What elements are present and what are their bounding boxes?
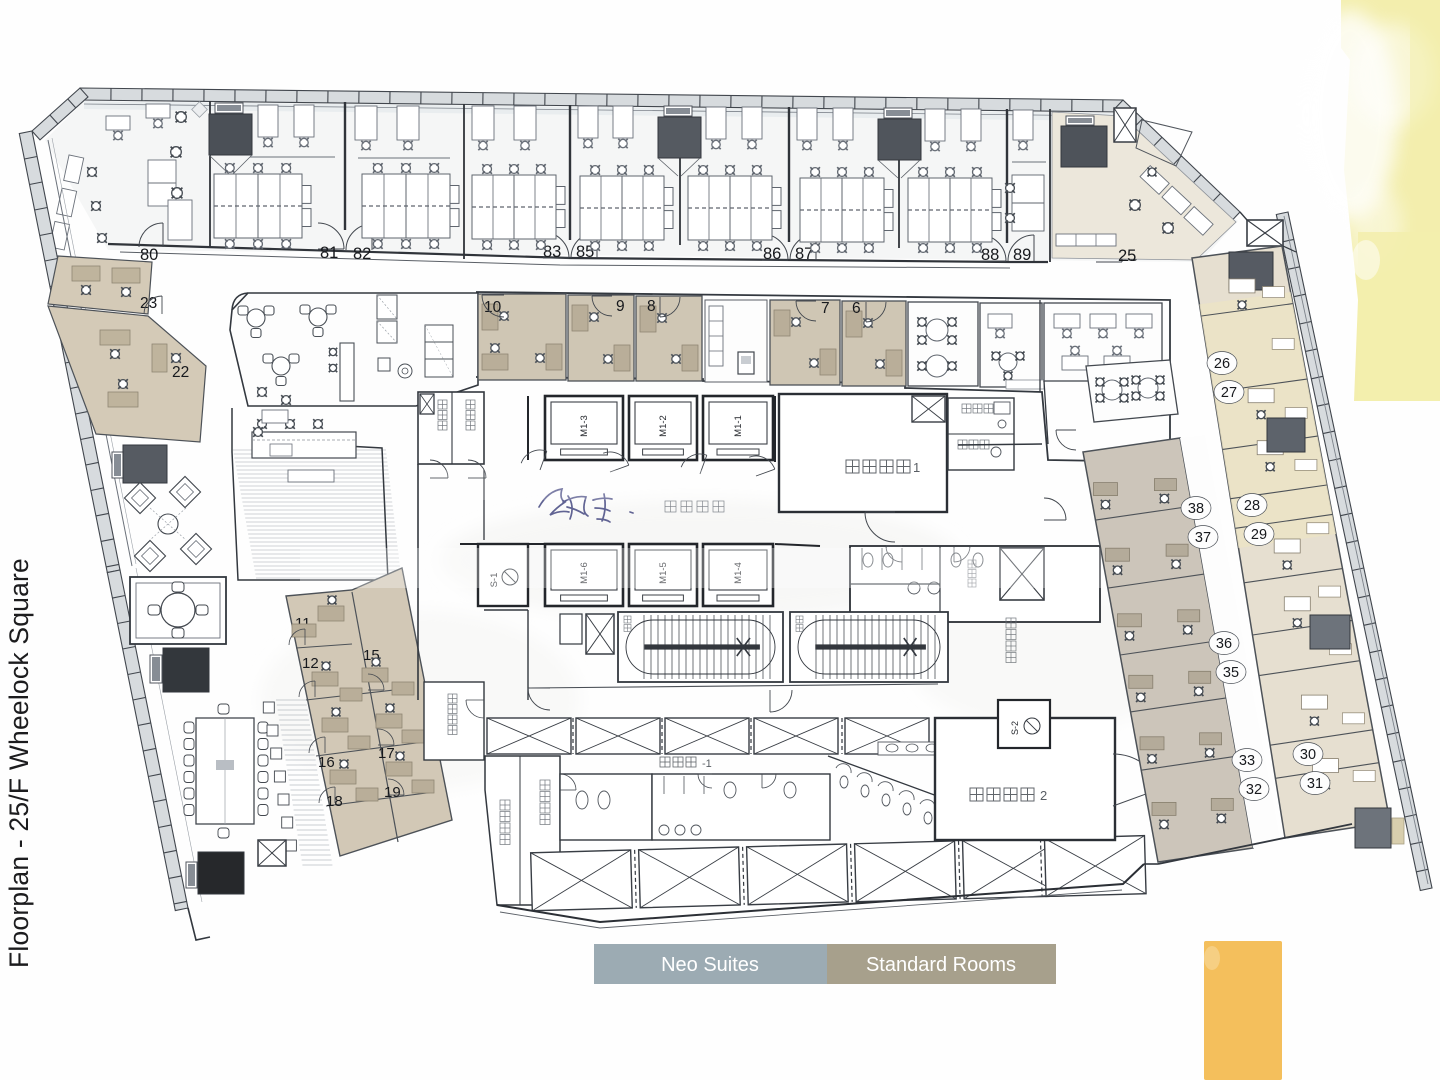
svg-text:31: 31: [1307, 776, 1323, 792]
svg-text:38: 38: [1188, 501, 1204, 517]
svg-text:19: 19: [384, 784, 401, 801]
svg-text:29: 29: [1251, 527, 1267, 543]
svg-text:10: 10: [484, 299, 502, 316]
svg-text:27: 27: [1221, 385, 1237, 401]
svg-text:Neo Suites: Neo Suites: [661, 954, 759, 976]
svg-text:M1-1: M1-1: [733, 415, 744, 437]
svg-text:18: 18: [326, 793, 343, 810]
svg-text:9: 9: [616, 298, 625, 315]
svg-text:22: 22: [172, 364, 189, 381]
svg-text:8: 8: [647, 298, 656, 315]
svg-text:33: 33: [1239, 753, 1255, 769]
svg-text:7: 7: [821, 300, 830, 317]
svg-text:17: 17: [378, 745, 395, 762]
svg-text:25: 25: [1118, 247, 1136, 265]
svg-text:32: 32: [1246, 782, 1262, 798]
svg-text:M1-3: M1-3: [579, 415, 590, 437]
svg-text:81: 81: [320, 244, 338, 262]
svg-text:35: 35: [1223, 665, 1239, 681]
svg-text:89: 89: [1013, 246, 1031, 264]
svg-text:37: 37: [1195, 530, 1211, 546]
svg-text:36: 36: [1216, 636, 1232, 652]
svg-text:-1: -1: [702, 758, 712, 770]
svg-text:82: 82: [353, 245, 371, 263]
svg-text:12: 12: [302, 655, 319, 672]
svg-text:28: 28: [1244, 498, 1260, 514]
svg-text:1: 1: [913, 460, 920, 475]
svg-text:S-2: S-2: [1010, 721, 1020, 735]
svg-text:16: 16: [318, 754, 335, 771]
svg-text:30: 30: [1300, 747, 1316, 763]
svg-text:86: 86: [763, 245, 781, 263]
svg-text:Floorplan - 25/F Wheelock Squa: Floorplan - 25/F Wheelock Square: [4, 558, 34, 968]
svg-text:6: 6: [852, 300, 861, 317]
svg-text:26: 26: [1214, 356, 1230, 372]
svg-text:Standard Rooms: Standard Rooms: [866, 954, 1016, 976]
svg-text:2: 2: [1040, 788, 1047, 803]
svg-text:M1-2: M1-2: [658, 415, 669, 437]
svg-text:88: 88: [981, 246, 999, 264]
